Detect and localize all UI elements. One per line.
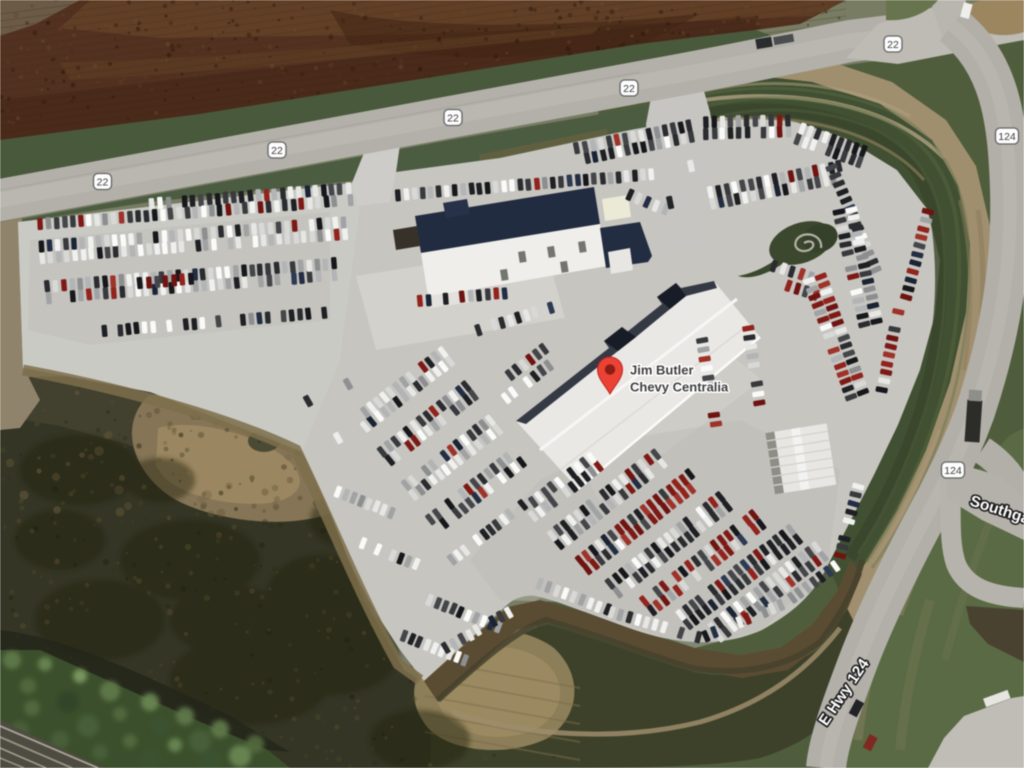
svg-text:22: 22	[887, 39, 899, 51]
svg-text:124: 124	[944, 465, 962, 477]
svg-text:Chevy Centralia: Chevy Centralia	[630, 380, 729, 395]
svg-text:22: 22	[271, 145, 283, 157]
svg-text:22: 22	[447, 112, 459, 124]
svg-text:124: 124	[998, 131, 1016, 143]
svg-text:22: 22	[623, 83, 635, 95]
svg-text:22: 22	[97, 176, 109, 188]
svg-text:Jim Butler: Jim Butler	[630, 363, 694, 378]
